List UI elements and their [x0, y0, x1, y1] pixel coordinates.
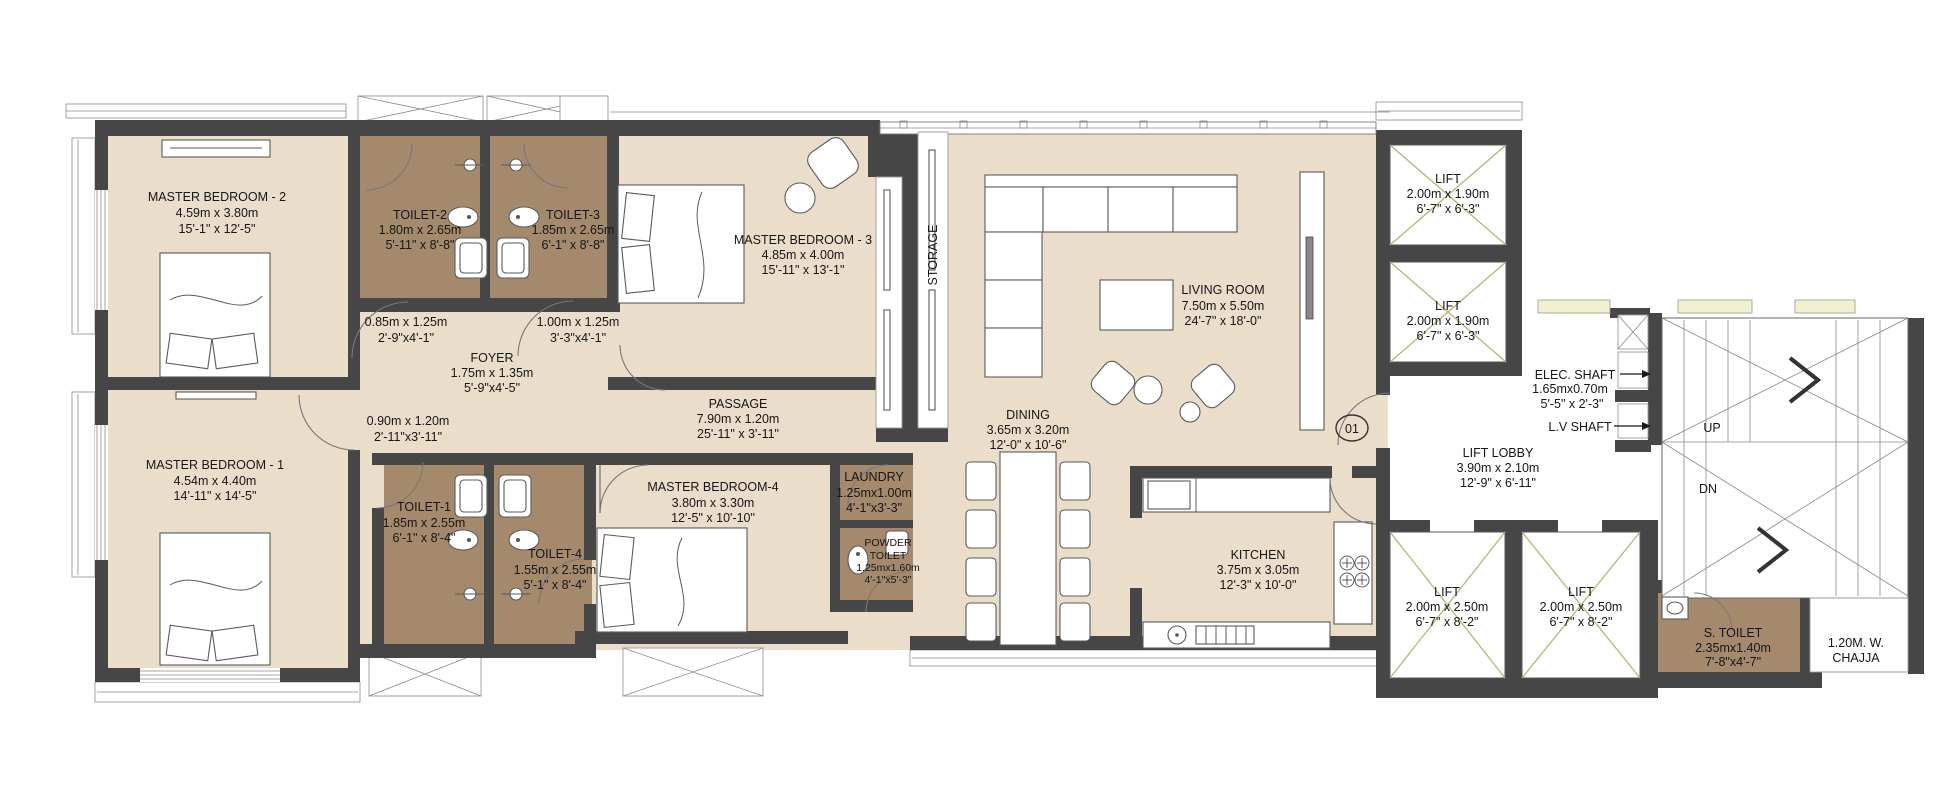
label-toilet-2-imperial: 5'-11" x 8'-8" [385, 238, 454, 252]
label-lv-shaft: L.V SHAFT [1548, 420, 1612, 434]
label-lift-top-1-imperial: 6'-7" x 6'-3" [1417, 202, 1480, 216]
label-kitchen-name: KITCHEN [1231, 548, 1286, 562]
label-foyer-name: FOYER [470, 351, 513, 365]
label-toilet-3-name: TOILET-3 [546, 208, 600, 222]
label-powder-toilet-name1: POWDER [864, 537, 912, 549]
label-living-room-metric: 7.50m x 5.50m [1182, 299, 1265, 313]
label-servant-toilet-name: S. TOILET [1704, 626, 1763, 640]
label-lift-bottom-1-name: LIFT [1434, 585, 1460, 599]
label-toilet-3-metric: 1.85m x 2.65m [532, 223, 615, 237]
label-master-bedroom-1-metric: 4.54m x 4.40m [174, 474, 257, 488]
label-window-2-metric: 1.00m x 1.25m [537, 315, 620, 329]
label-servant-toilet-imperial: 7'-8"x4'-7" [1705, 655, 1761, 669]
label-powder-toilet-metric: 1.25mx1.60m [856, 562, 920, 574]
label-elec-shaft-metric: 1.65mx0.70m [1532, 382, 1608, 396]
label-kitchen-imperial: 12'-3" x 10'-0" [1220, 578, 1297, 592]
label-lift-bottom-2-imperial: 6'-7" x 8'-2" [1550, 615, 1613, 629]
label-foyer-metric: 1.75m x 1.35m [451, 366, 534, 380]
label-toilet-2-name: TOILET-2 [393, 208, 447, 222]
label-foyer-imperial: 5'-9"x4'-5" [464, 381, 520, 395]
tv-panel [1306, 237, 1313, 319]
label-unit-number: 01 [1345, 422, 1359, 436]
label-toilet-1-metric: 1.85m x 2.55m [383, 516, 466, 530]
label-master-bedroom-1-name: MASTER BEDROOM - 1 [146, 458, 284, 472]
label-elec-shaft-name: ELEC. SHAFT [1535, 368, 1616, 382]
label-elec-shaft-imperial: 5'-5" x 2'-3" [1541, 397, 1604, 411]
label-window-2-imperial: 3'-3"x4'-1" [550, 331, 606, 345]
label-toilet-4-metric: 1.55m x 2.55m [514, 563, 597, 577]
label-lift-bottom-1-metric: 2.00m x 2.50m [1406, 600, 1489, 614]
label-toilet-3-imperial: 6'-1" x 8'-8" [542, 238, 605, 252]
dining-furniture [966, 452, 1090, 645]
label-master-bedroom-3-name: MASTER BEDROOM - 3 [734, 233, 872, 247]
label-master-bedroom-3-imperial: 15'-11" x 13'-1" [762, 263, 845, 277]
label-door-1-metric: 0.90m x 1.20m [367, 414, 450, 428]
label-master-bedroom-2-imperial: 15'-1" x 12'-5" [179, 222, 256, 236]
label-servant-toilet-metric: 2.35mx1.40m [1695, 641, 1771, 655]
label-toilet-1-imperial: 6'-1" x 8'-4" [393, 531, 456, 545]
label-laundry-imperial: 4'-1"x3'-3" [846, 501, 902, 515]
label-chajja-line1: 1.20M. W. [1828, 636, 1884, 650]
staircase [1662, 318, 1908, 598]
label-lift-bottom-2-name: LIFT [1568, 585, 1594, 599]
label-window-1-metric: 0.85m x 1.25m [365, 315, 448, 329]
label-master-bedroom-3-metric: 4.85m x 4.00m [762, 248, 845, 262]
label-lift-top-1-name: LIFT [1435, 172, 1461, 186]
floor-plan-canvas: MASTER BEDROOM - 2 4.59m x 3.80m 15'-1" … [0, 0, 1946, 812]
label-toilet-1-name: TOILET-1 [397, 500, 451, 514]
label-lift-bottom-1-imperial: 6'-7" x 8'-2" [1416, 615, 1479, 629]
label-dining-name: DINING [1006, 408, 1050, 422]
label-master-bedroom-2-name: MASTER BEDROOM - 2 [148, 190, 286, 204]
label-stair-up: UP [1703, 421, 1720, 435]
label-toilet-2-metric: 1.80m x 2.65m [379, 223, 462, 237]
label-lift-lobby-name: LIFT LOBBY [1463, 446, 1534, 460]
bedroom-4-furniture [597, 528, 747, 632]
label-passage-imperial: 25'-11" x 3'-11" [697, 427, 779, 441]
label-storage: STORAGE [926, 225, 940, 286]
label-lift-top-2-metric: 2.00m x 1.90m [1407, 314, 1490, 328]
hatched-box [358, 96, 608, 122]
label-lift-top-1-metric: 2.00m x 1.90m [1407, 187, 1490, 201]
label-toilet-4-name: TOILET-4 [528, 547, 582, 561]
label-master-bedroom-4-name: MASTER BEDROOM-4 [647, 480, 778, 494]
label-master-bedroom-2-metric: 4.59m x 3.80m [176, 206, 259, 220]
label-living-room-name: LIVING ROOM [1181, 283, 1264, 297]
label-laundry-metric: 1.25mx1.00m [836, 486, 912, 500]
label-window-1-imperial: 2'-9"x4'-1" [378, 331, 434, 345]
label-living-room-imperial: 24'-7" x 18'-0" [1185, 314, 1262, 328]
label-lift-bottom-2-metric: 2.00m x 2.50m [1540, 600, 1623, 614]
label-toilet-4-imperial: 5'-1" x 8'-4" [524, 578, 587, 592]
label-lift-top-2-imperial: 6'-7" x 6'-3" [1417, 329, 1480, 343]
label-stair-down: DN [1699, 482, 1717, 496]
label-laundry-name: LAUNDRY [844, 470, 904, 484]
label-master-bedroom-4-metric: 3.80m x 3.30m [672, 496, 755, 510]
label-dining-imperial: 12'-0" x 10'-6" [990, 438, 1067, 452]
label-passage-name: PASSAGE [709, 397, 768, 411]
label-powder-toilet-name2: TOILET [870, 550, 907, 562]
label-chajja-line2: CHAJJA [1832, 651, 1880, 665]
floor-plan-drawing: MASTER BEDROOM - 2 4.59m x 3.80m 15'-1" … [0, 0, 1946, 812]
label-passage-metric: 7.90m x 1.20m [697, 412, 780, 426]
label-lift-top-2-name: LIFT [1435, 299, 1461, 313]
label-master-bedroom-1-imperial: 14'-11" x 14'-5" [174, 489, 257, 503]
label-lift-lobby-metric: 3.90m x 2.10m [1457, 461, 1540, 475]
label-powder-toilet-imperial: 4'-1"x5'-3" [864, 574, 911, 586]
label-lift-lobby-imperial: 12'-9" x 6'-11" [1460, 476, 1536, 490]
label-master-bedroom-4-imperial: 12'-5" x 10'-10" [671, 511, 755, 525]
label-kitchen-metric: 3.75m x 3.05m [1217, 563, 1300, 577]
label-door-1-imperial: 2'-11"x3'-11" [374, 430, 442, 444]
label-dining-metric: 3.65m x 3.20m [987, 423, 1070, 437]
